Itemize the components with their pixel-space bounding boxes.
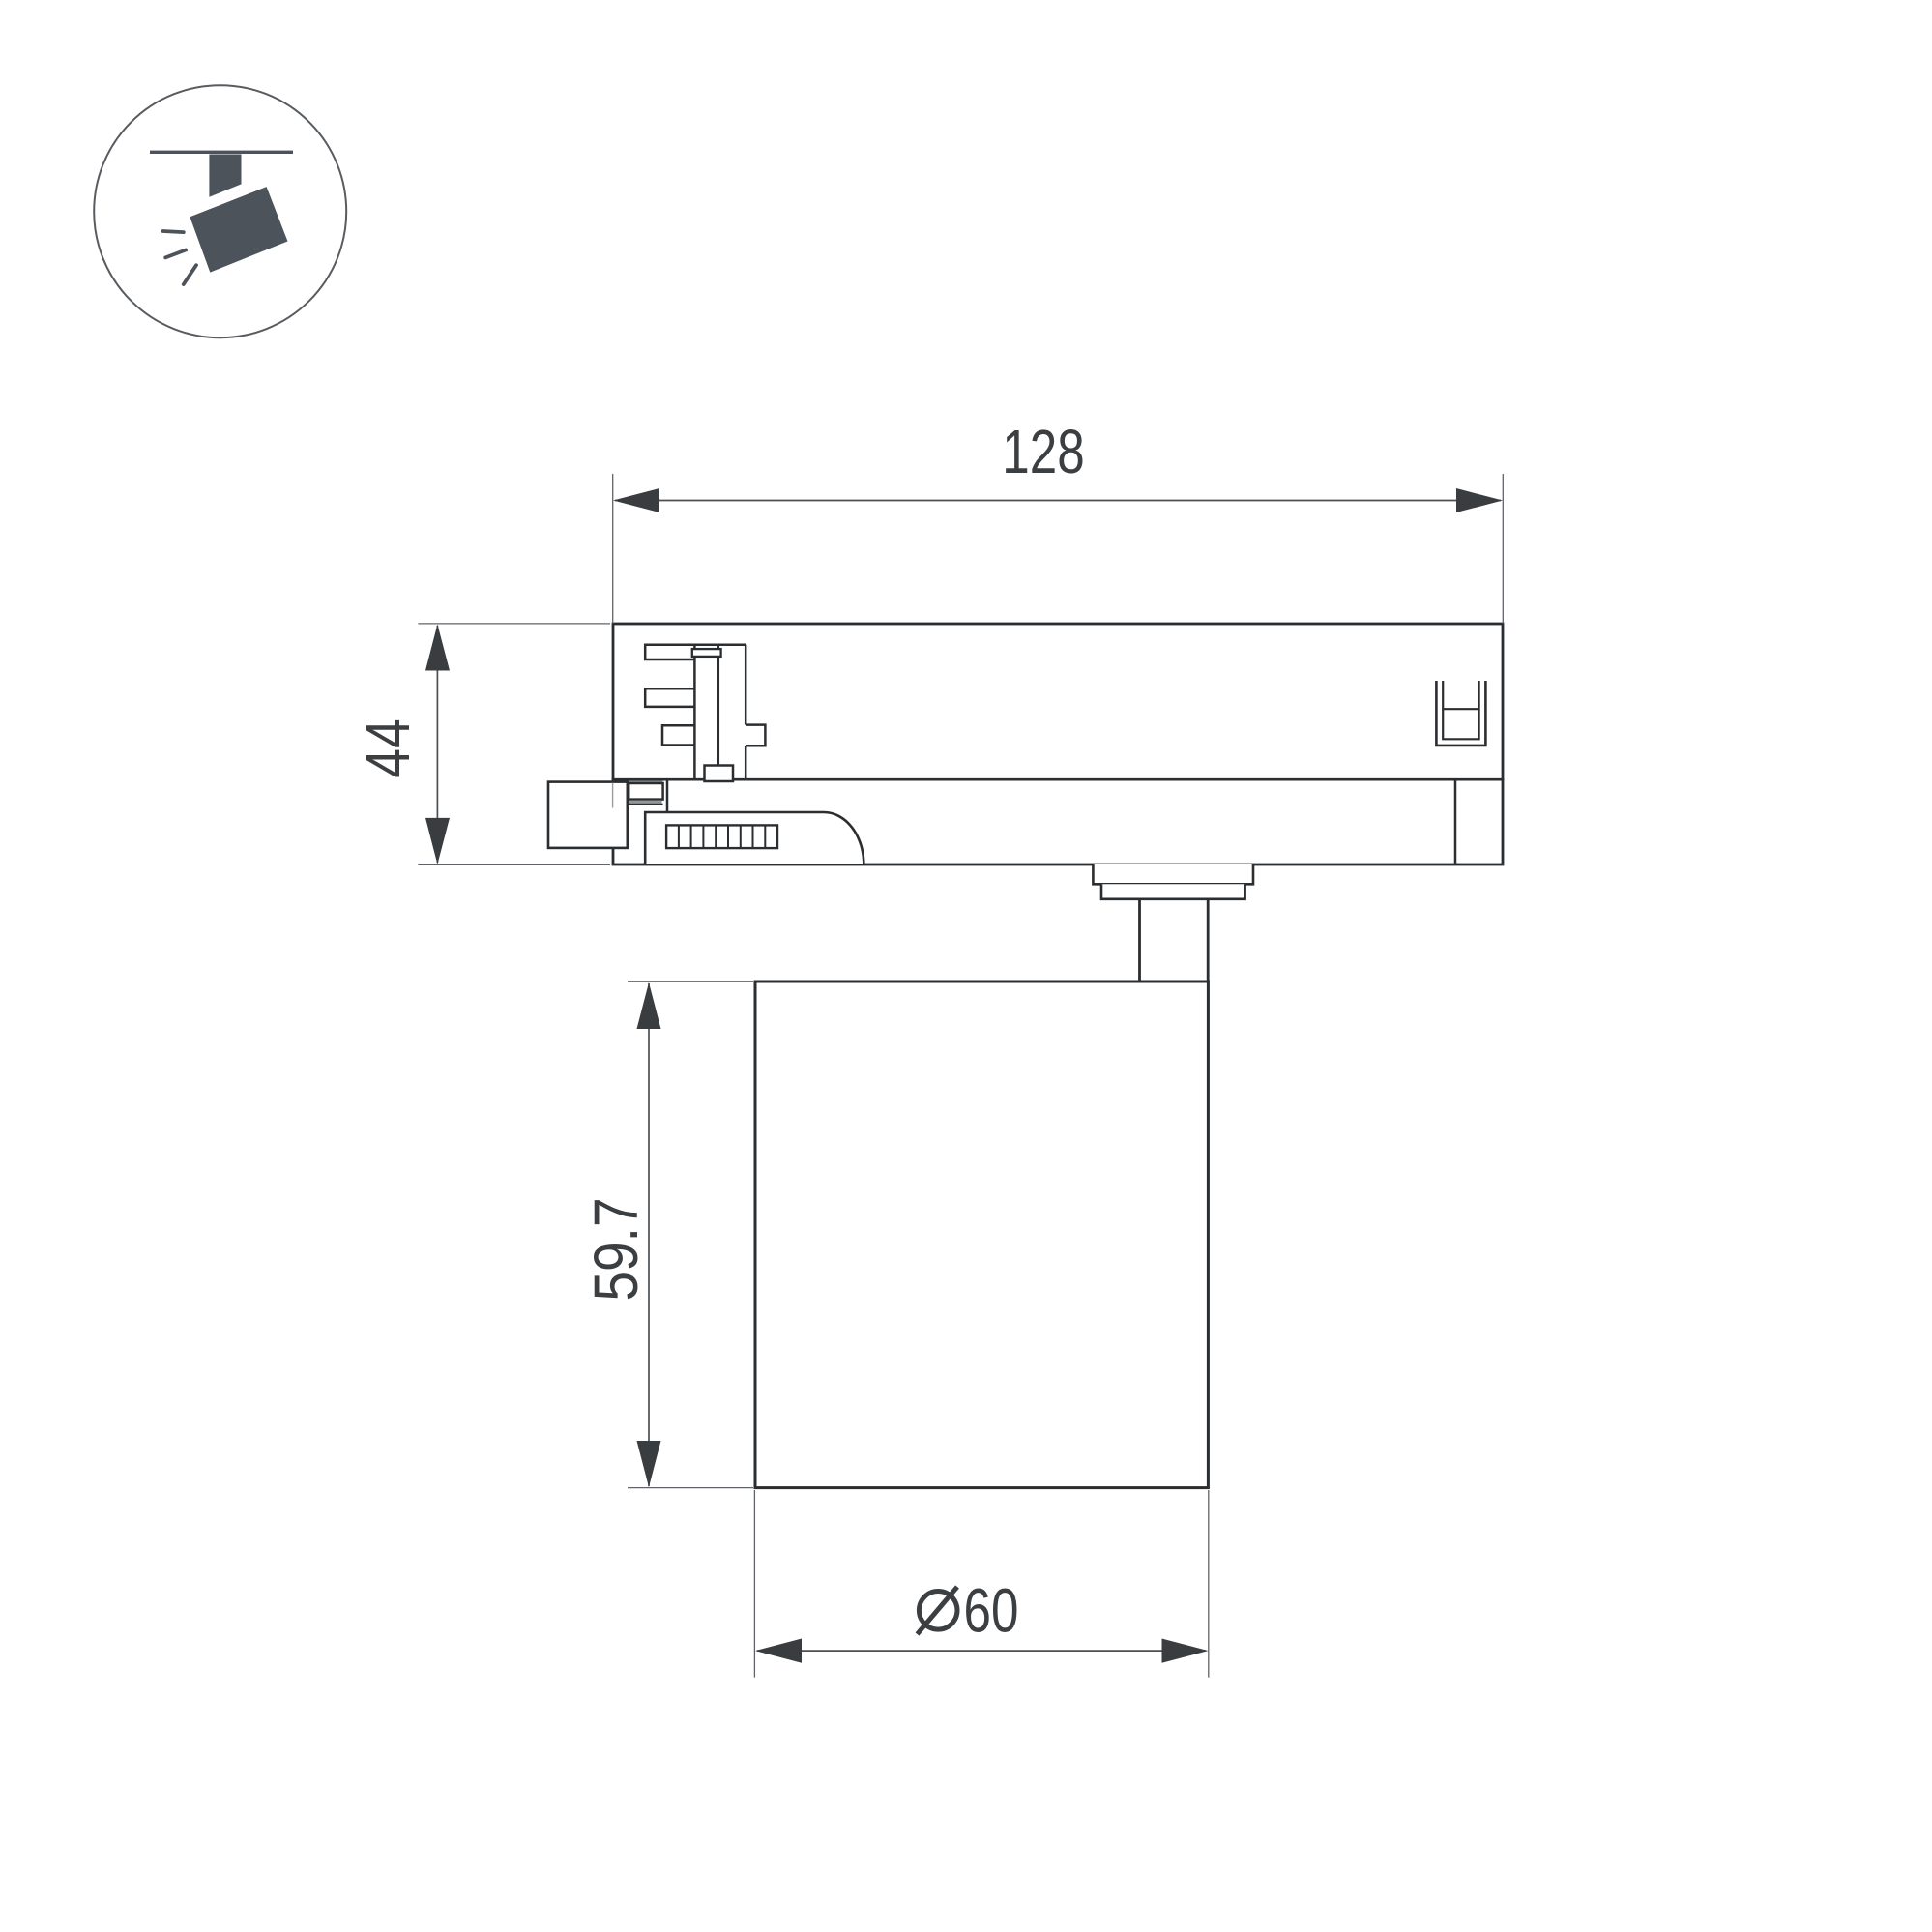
svg-text:59.7: 59.7 — [581, 1197, 651, 1301]
svg-text:44: 44 — [353, 718, 423, 778]
svg-text:60: 60 — [964, 1577, 1019, 1646]
svg-text:128: 128 — [1002, 419, 1084, 487]
